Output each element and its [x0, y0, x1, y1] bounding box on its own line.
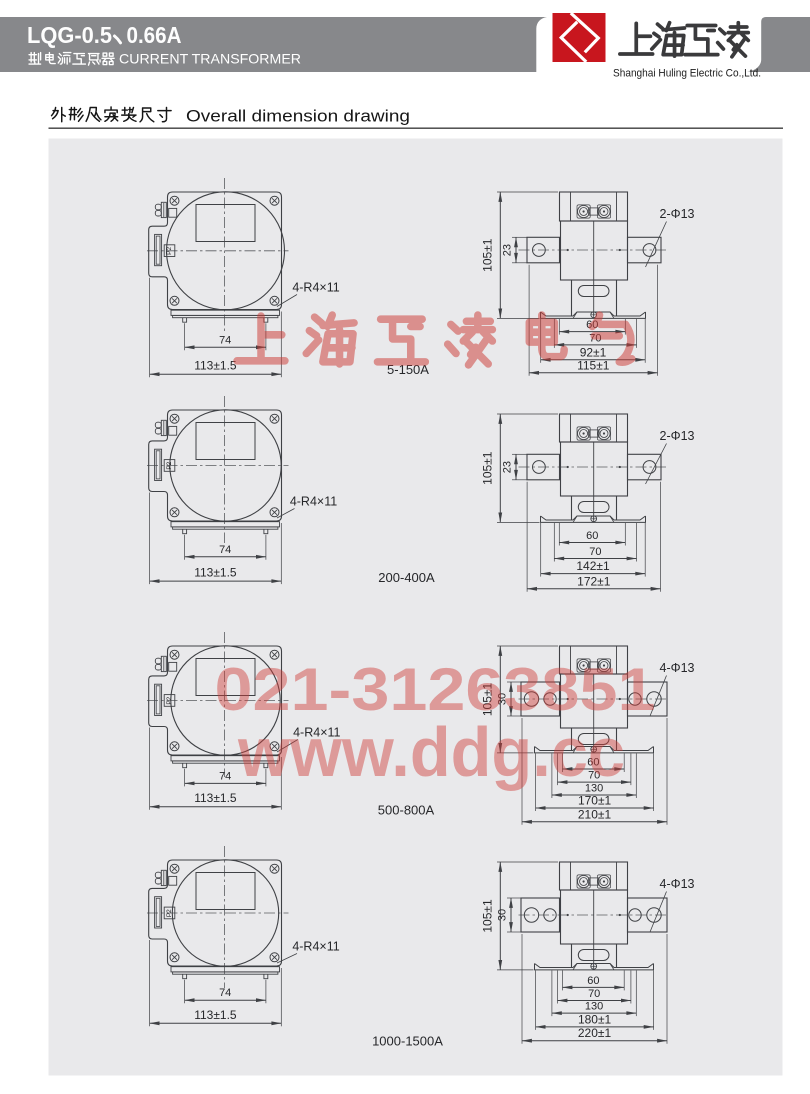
svg-text:P2: P2 [166, 909, 173, 917]
svg-text:1000-1500A: 1000-1500A [372, 1034, 443, 1049]
svg-text:115±1: 115±1 [577, 358, 610, 372]
svg-text:23: 23 [502, 461, 514, 473]
svg-text:4-R4×11: 4-R4×11 [290, 495, 337, 509]
svg-text:113±1.5: 113±1.5 [194, 1008, 237, 1022]
svg-text:4-R4×11: 4-R4×11 [292, 281, 339, 295]
svg-text:92±1: 92±1 [580, 345, 607, 359]
svg-text:172±1: 172±1 [577, 574, 611, 588]
svg-text:Shanghai Huling Electric Co.,L: Shanghai Huling Electric Co.,Ltd. [613, 68, 761, 80]
svg-text:210±1: 210±1 [578, 807, 612, 821]
svg-text:23: 23 [502, 244, 514, 256]
svg-text:2-Φ13: 2-Φ13 [660, 429, 695, 443]
svg-text:60: 60 [587, 975, 599, 987]
svg-text:P2: P2 [166, 696, 173, 704]
svg-text:74: 74 [219, 770, 231, 782]
svg-text:113±1.5: 113±1.5 [194, 359, 237, 373]
svg-text:70: 70 [588, 988, 600, 1000]
svg-text:www.ddg.cc: www.ddg.cc [237, 713, 625, 791]
svg-text:142±1: 142±1 [576, 559, 610, 573]
svg-text:105±1: 105±1 [480, 451, 494, 485]
svg-text:P2: P2 [166, 461, 173, 469]
svg-text:105±1: 105±1 [480, 899, 494, 933]
svg-text:4-Φ13: 4-Φ13 [660, 877, 695, 891]
svg-text:200-400A: 200-400A [378, 570, 435, 585]
svg-text:Overall dimension drawing: Overall dimension drawing [186, 108, 410, 126]
svg-text:P2: P2 [166, 247, 173, 255]
svg-text:74: 74 [219, 334, 231, 346]
svg-text:30: 30 [497, 909, 509, 921]
svg-text:74: 74 [219, 544, 231, 556]
svg-text:74: 74 [219, 987, 231, 999]
svg-text:60: 60 [586, 530, 598, 542]
svg-text:113±1.5: 113±1.5 [194, 566, 237, 580]
svg-text:2-Φ13: 2-Φ13 [660, 207, 695, 221]
svg-text:220±1: 220±1 [578, 1026, 612, 1040]
svg-text:0.66A: 0.66A [127, 22, 182, 48]
svg-text:500-800A: 500-800A [378, 803, 435, 818]
svg-text:CURRENT TRANSFORMER: CURRENT TRANSFORMER [119, 51, 301, 67]
svg-text:4-Φ13: 4-Φ13 [660, 661, 695, 675]
svg-text:4-R4×11: 4-R4×11 [292, 940, 339, 954]
svg-text:170±1: 170±1 [578, 794, 612, 808]
svg-text:105±1: 105±1 [480, 238, 494, 272]
svg-text:70: 70 [589, 546, 601, 558]
svg-text:113±1.5: 113±1.5 [194, 791, 237, 805]
svg-text:180±1: 180±1 [578, 1012, 612, 1026]
svg-text:130: 130 [585, 1001, 603, 1013]
svg-text:LQG-0.5: LQG-0.5 [27, 22, 112, 48]
